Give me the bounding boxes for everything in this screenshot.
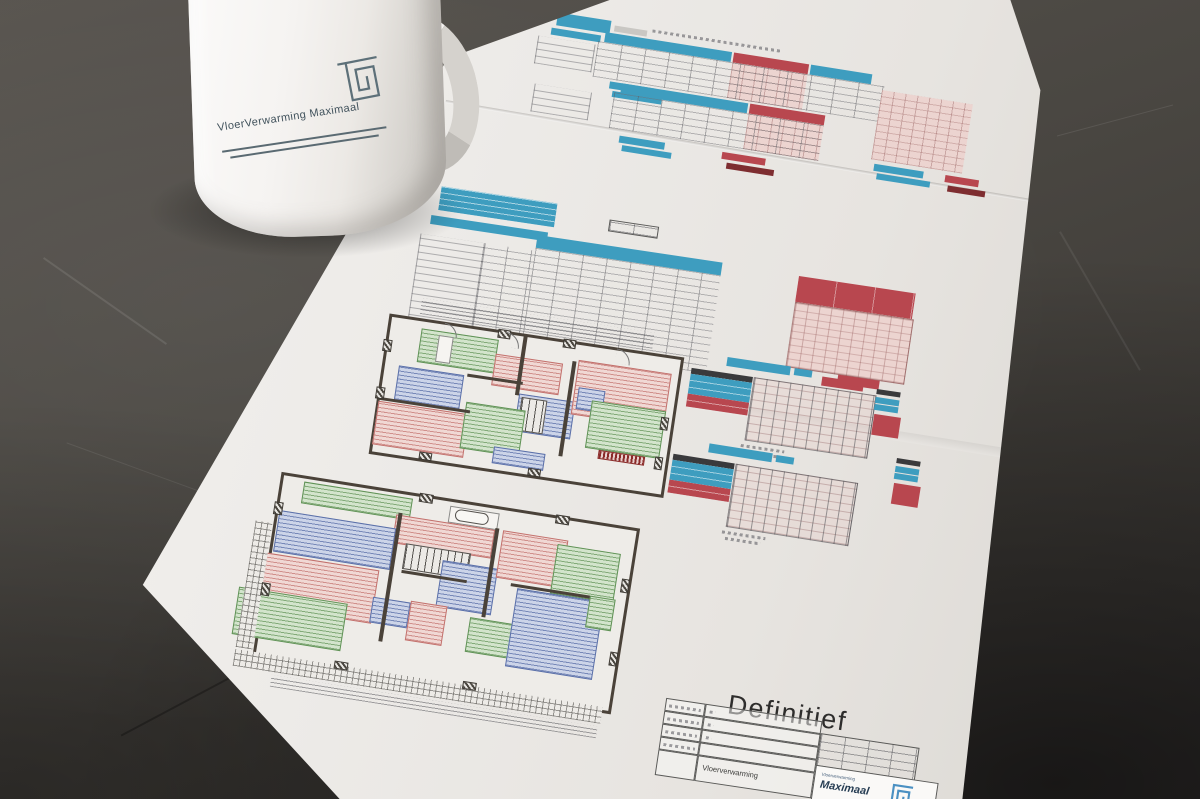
summary-bar-blue xyxy=(726,357,791,375)
zone-zx xyxy=(419,493,434,504)
summary-bar-blue-small xyxy=(794,368,813,378)
zone-zarc xyxy=(615,348,632,365)
zone-zarc xyxy=(443,323,459,339)
company-logo-text: Maximaal xyxy=(819,779,870,798)
photo-scene: Definitief Vloerverwarming Vloerverwarmi… xyxy=(0,0,1200,799)
label-cell xyxy=(655,749,698,781)
zone-zx xyxy=(620,578,630,593)
zone-zx xyxy=(659,417,669,431)
folded-plan-sheet: Definitief Vloerverwarming Vloerverwarmi… xyxy=(0,0,1200,799)
legend-swatch xyxy=(871,414,901,439)
total-bar-darkred xyxy=(947,186,985,198)
zone-zarc xyxy=(504,332,521,349)
zone-zx xyxy=(608,652,618,667)
mug-underline xyxy=(222,126,386,153)
scratch-mark xyxy=(43,257,167,345)
zone-zx xyxy=(527,468,541,478)
zone-zr xyxy=(405,601,448,646)
zone-zx xyxy=(562,338,576,349)
total-bar-darkred xyxy=(726,163,774,176)
legend-swatch xyxy=(891,483,921,508)
scratch-mark xyxy=(1059,231,1141,371)
row-labels xyxy=(534,36,596,73)
title-block: Definitief Vloerverwarming Vloerverwarmi… xyxy=(652,686,965,799)
zone-zx xyxy=(555,514,570,525)
zone-zg xyxy=(417,328,499,373)
scratch-mark xyxy=(1057,104,1173,136)
row-labels xyxy=(530,84,592,121)
zone-zx xyxy=(382,339,393,352)
summary-bar-blue-small xyxy=(775,455,794,465)
coffee-mug: VloerVerwarming Maximaal xyxy=(187,0,448,240)
legend-swatch xyxy=(896,458,920,467)
small-cell-group xyxy=(608,219,659,238)
zone-zb xyxy=(369,597,411,629)
square-spiral-icon xyxy=(883,780,915,799)
zone-zx xyxy=(375,386,386,399)
side-table-pink xyxy=(871,90,973,174)
zone-zg xyxy=(585,596,616,632)
zone-zx xyxy=(418,451,432,461)
zone-zg xyxy=(585,400,666,459)
zone-zr xyxy=(491,354,563,396)
zone-zx xyxy=(653,456,663,470)
zone-zb xyxy=(492,446,546,470)
color-legend-2 xyxy=(889,458,926,512)
